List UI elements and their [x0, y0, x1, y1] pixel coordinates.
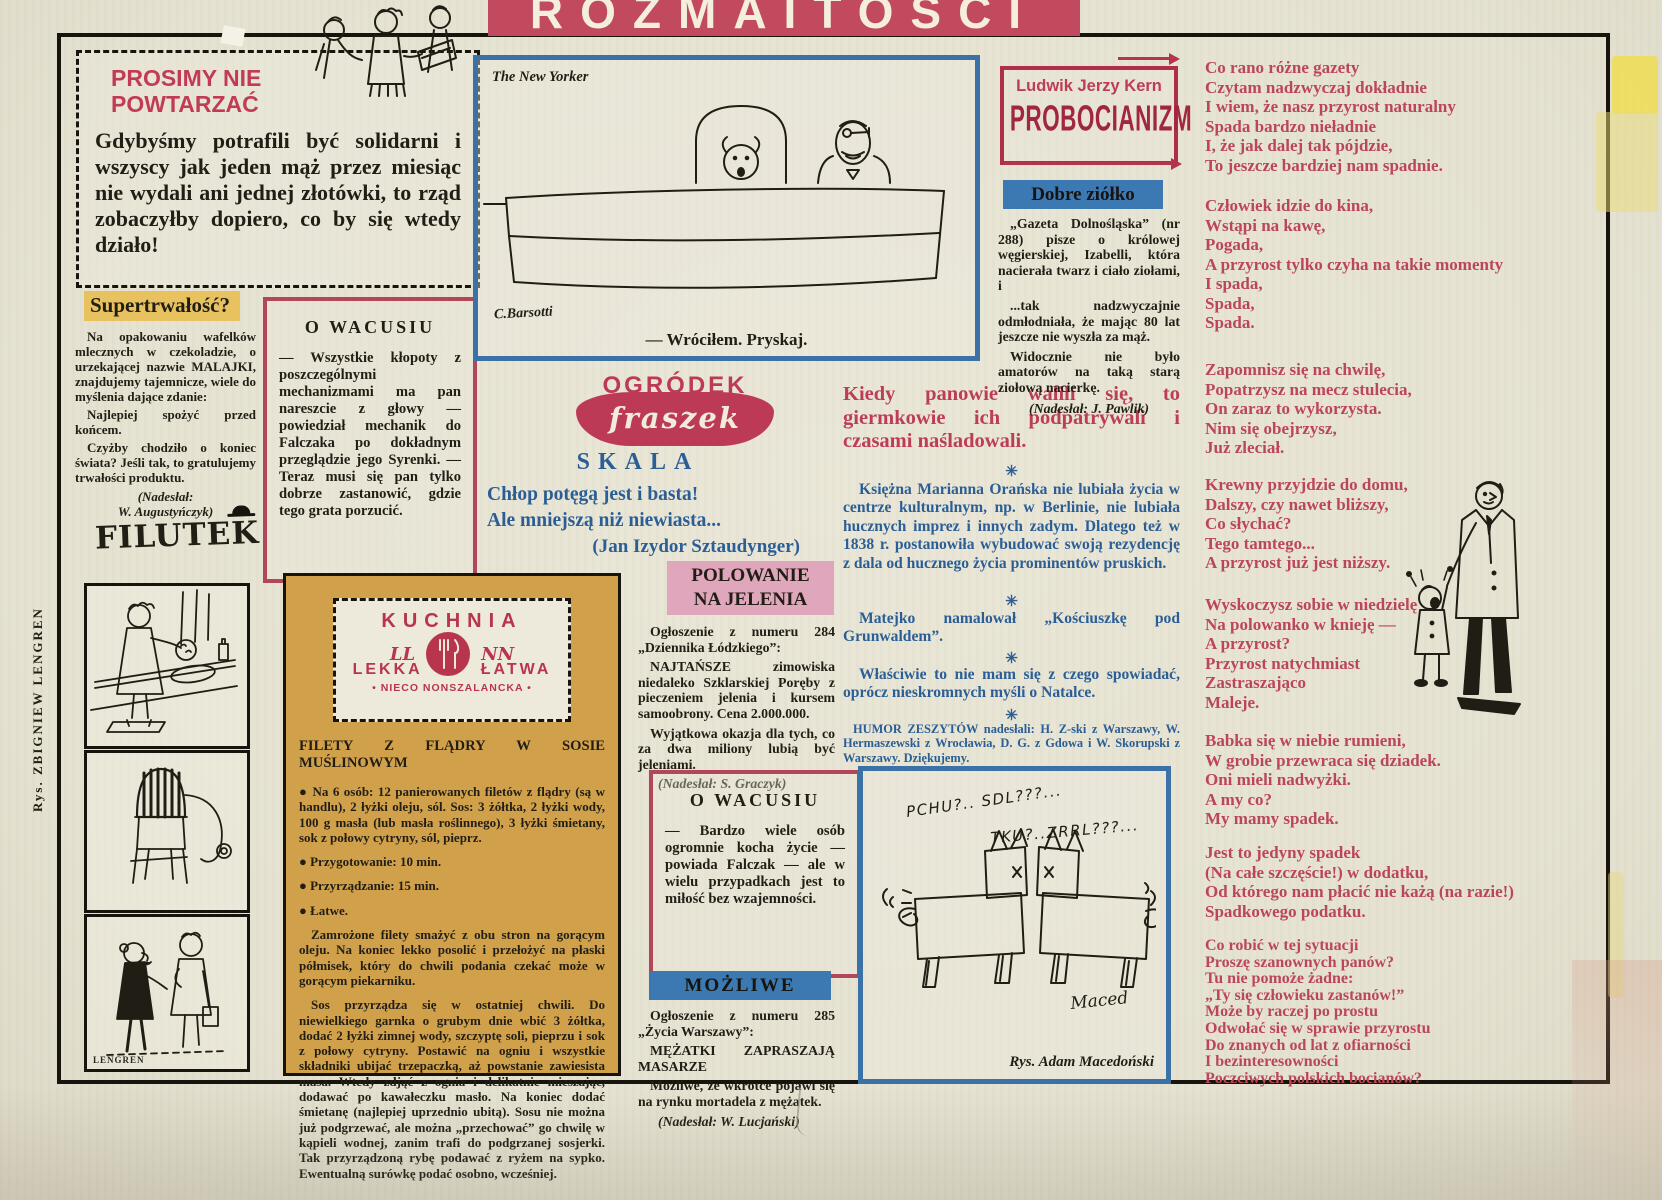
comic-panel-3: LENGREN	[84, 914, 250, 1072]
dog-and-man-cartoon	[478, 86, 965, 308]
arrow-right-icon	[1118, 52, 1180, 65]
cartoon-caption: — Wróciłem. Pryskaj.	[478, 330, 975, 350]
new-yorker-label: The New Yorker	[492, 69, 588, 86]
humor-contributors: HUMOR ZESZYTÓW nadesłali: H. Z-ski z War…	[843, 722, 1180, 765]
humor-item-1: Księżna Marianna Orańska nie lubiała życ…	[843, 481, 1180, 573]
ziolko-column: „Gazeta Dolnośląska” (nr 288) pisze o kr…	[998, 216, 1180, 420]
cartoonist-signature: C.Barsotti	[494, 304, 554, 323]
comic-panel-2-drawing	[87, 753, 241, 904]
polowanie-p3: Wyjątkowa okazja dla tych, co za dwa mil…	[638, 726, 835, 773]
artist-credit-vertical: Rys. ZBIGNIEW LENGREN	[30, 592, 46, 812]
section-banner: ROZMAITOŚCI	[488, 0, 1080, 36]
comic-panel-2	[84, 750, 250, 913]
ziolko-p3: Widocznie nie było amatorów na taką star…	[998, 349, 1180, 396]
wacusiu-1-body: — Wszystkie kłopoty z poszczególnymi mec…	[279, 350, 461, 520]
wacusiu-2-body: — Bardzo wiele osób ogromnie kocha życie…	[665, 823, 845, 908]
wacusiu-2-heading: O WACUSIU	[665, 790, 845, 811]
people-talking-illustration	[300, 0, 478, 114]
star-separator-icon: ✳	[843, 462, 1180, 481]
humor-item-3: Właściwie to nie mam się z czego spowiad…	[843, 666, 1180, 703]
kuchnia-recipe-box: KUCHNIA LL NN LEKKA ŁATWA • NIECO NONSZA…	[283, 573, 621, 1076]
polowanie-p2: NAJTAŃSZE zimowiska niedaleko Szklarskie…	[638, 659, 835, 721]
supertrwalosc-heading: Supertrwałość?	[84, 291, 240, 321]
supertrwalosc-p2: Najlepiej spożyć przed końcem.	[75, 407, 256, 437]
macedonski-cartoon-box: PCHU?.. SDL???... TKU?..ZRRL???... Maced	[858, 766, 1171, 1084]
poem-stanza-2: Człowiek idzie do kina, Wstąpi na kawę, …	[1205, 196, 1577, 333]
poem-title: PROBOCIANIZM	[1010, 99, 1192, 141]
poem-stanza-6: Babka się w niebie rumieni, W grobie prz…	[1205, 731, 1577, 829]
recipe-prep-time: ● Przygotowanie: 10 min.	[299, 854, 605, 869]
scan-artifact	[1596, 112, 1658, 212]
comic-panel-3-drawing	[87, 917, 241, 1063]
ogrodek-fraszek-logo: OGRÓDEK fraszek	[560, 372, 790, 446]
supertrwalosc-p1: Na opakowaniu wafelków mlecznych w czeko…	[75, 329, 256, 404]
dog-speech-2: TKU?..ZRRL???...	[990, 816, 1140, 847]
supertrwalosc-p3: Czyżby chodziło o koniec świata? Jeśli t…	[75, 440, 256, 485]
panel-signature: LENGREN	[93, 1055, 145, 1065]
comic-panel-1-drawing	[87, 586, 241, 740]
cartoon-credit: Rys. Adam Macedoński	[1009, 1054, 1154, 1071]
recipe-cook-time: ● Przyrządzanie: 15 min.	[299, 878, 605, 893]
fraszek-logo-text: fraszek	[609, 401, 741, 435]
poem-stanza-1: Co rano różne gazety Czytam nadzwyczaj d…	[1205, 58, 1577, 175]
cartoonist-signature: Maced	[1068, 988, 1129, 1014]
recipe-difficulty: ● Łatwe.	[299, 903, 605, 918]
mozliwe-p1: Ogłoszenie z numeru 285 „Życia Warszawy”…	[638, 1008, 835, 1039]
kuchnia-subtitle: • NIECO NONSZALANCKA •	[336, 682, 568, 694]
comic-panel-1	[84, 583, 250, 749]
kuchnia-logo-title: KUCHNIA	[336, 610, 568, 633]
man-and-child-illustration	[1392, 468, 1542, 730]
poem-stanza-3: Zapomnisz się na chwilę, Popatrzysz na m…	[1205, 360, 1577, 458]
ziolko-heading: Dobre ziółko	[1003, 180, 1163, 209]
kuchnia-logo-label: KUCHNIA LL NN LEKKA ŁATWA • NIECO NONSZA…	[333, 598, 571, 722]
ziolko-credit: (Nadesłał: J. Pawlik)	[998, 401, 1180, 417]
arrow-right-icon	[1004, 157, 1182, 170]
section-title: ROZMAITOŚCI	[488, 0, 1080, 36]
prosimy-body: Gdybyśmy potrafili być solidarni i wszys…	[95, 128, 461, 258]
wacusiu-box-2: O WACUSIU — Bardzo wiele osób ogromnie k…	[649, 770, 861, 978]
square-dogs-cartoon: PCHU?.. SDL???... TKU?..ZRRL???... Maced	[863, 771, 1156, 1039]
poem-stanza-7: Jest to jedyny spadek (Na całe szczęście…	[1205, 843, 1577, 921]
humor-item-2: Matejko namalował „Kościuszkę pod Grunwa…	[843, 610, 1180, 647]
fraszka-lines: Chłop potęgą jest i basta! Ale mniejszą …	[487, 482, 807, 534]
new-yorker-cartoon-box: The New Yorker	[473, 55, 980, 361]
fraszek-blob: fraszek	[576, 392, 774, 446]
filutek-logo: FILUTEK	[94, 515, 245, 556]
supertrwalosc-column: Na opakowaniu wafelków mlecznych w czeko…	[75, 329, 256, 519]
recipe-step-1: Zamrożone filety smażyć z obu stron na g…	[299, 927, 605, 988]
recipe-title: FILETY Z FLĄDRY W SOSIE MUŚLINOWYM	[299, 738, 605, 772]
fraszka-author: (Jan Izydor Sztaudynger)	[500, 536, 800, 558]
fraszka-title: SKALA	[473, 449, 803, 476]
newspaper-page: ROZMAITOŚCI PROSIMY NIE POWTARZAĆ Gdybyś…	[0, 0, 1662, 1200]
dog-speech-1: PCHU?.. SDL???...	[905, 781, 1063, 821]
torn-paper-artifact	[221, 25, 246, 47]
mozliwe-p2: MĘŻATKI ZAPRASZAJĄ MASARZE	[638, 1043, 835, 1074]
paper-edge-shadow	[0, 1086, 1662, 1200]
poem-author: Ludwik Jerzy Kern	[1004, 77, 1174, 96]
kuchnia-word-lekka: LEKKA	[353, 661, 423, 679]
polowanie-p1: Ogłoszenie z numeru 284 „Dziennika Łódzk…	[638, 624, 835, 655]
poem-stanza-8: Co robić w tej sytuacji Proszę szanownyc…	[1205, 938, 1577, 1087]
wacusiu-1-heading: O WACUSIU	[279, 317, 461, 338]
fork-knife-icon	[425, 631, 471, 677]
kuchnia-word-latwa: ŁATWA	[481, 661, 552, 679]
filutek-title-text: FILUTEK	[94, 515, 259, 557]
ziolko-p1: „Gazeta Dolnośląska” (nr 288) pisze o kr…	[998, 216, 1180, 294]
wacusiu-box-1: O WACUSIU — Wszystkie kłopoty z poszczeg…	[263, 297, 477, 583]
scan-artifact	[1612, 56, 1658, 114]
polowanie-heading: POLOWANIE NA JELENIA	[667, 561, 834, 615]
star-separator-icon: ✳	[843, 592, 1180, 611]
mozliwe-heading: MOŻLIWE	[649, 971, 831, 1000]
recipe-ingredients: ● Na 6 osób: 12 panierowanych filetów z …	[299, 784, 605, 845]
kern-title-box: Ludwik Jerzy Kern PROBOCIANIZM	[1000, 66, 1178, 165]
ziolko-p2: ...tak nadzwyczajnie odmłodniała, że maj…	[998, 298, 1180, 345]
polowanie-p2-bold: NAJTAŃSZE	[650, 659, 731, 674]
